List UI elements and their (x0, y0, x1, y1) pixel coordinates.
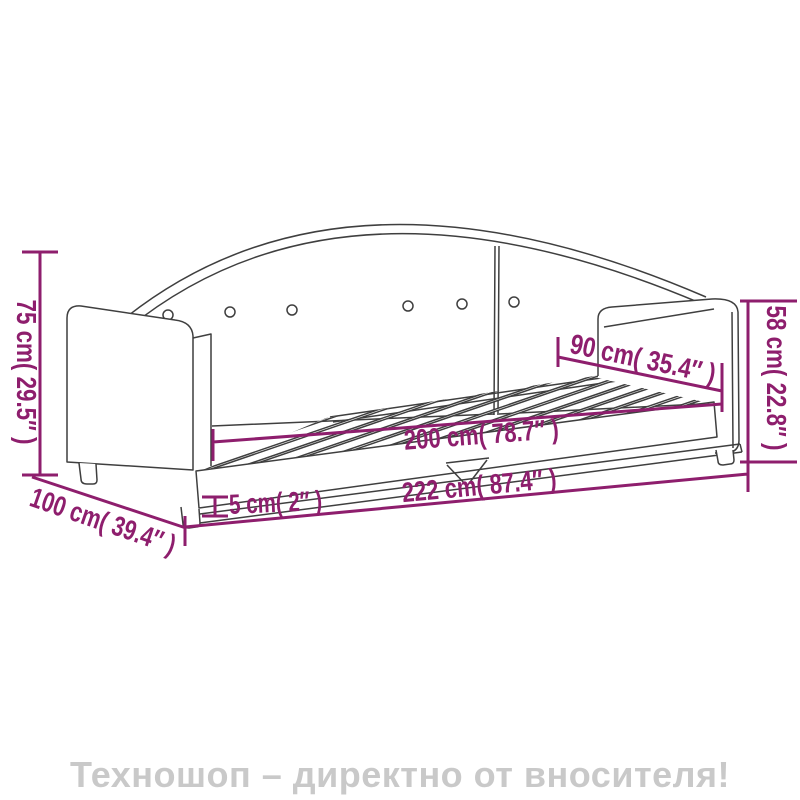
dimension-height: 75 cm( 29.5″ ) (11, 252, 58, 475)
armrest-leg (79, 463, 97, 484)
dimension-leg-height-label: 5 cm( 2″ ) (228, 485, 322, 520)
footer-banner: Техношоп – директно от вносителя! (0, 750, 800, 800)
left-armrest (67, 306, 211, 484)
dimension-height-label: 75 cm( 29.5″ ) (11, 300, 42, 445)
footer-banner-text: Техношоп – директно от вносителя! (70, 754, 730, 796)
dimension-diagram: 75 cm( 29.5″ ) 100 cm( 39.4″ ) 222 cm( 8… (0, 0, 800, 800)
product-dimension-page: 75 cm( 29.5″ ) 100 cm( 39.4″ ) 222 cm( 8… (0, 0, 800, 800)
dimension-arm-height: 58 cm( 22.8″ ) (740, 301, 797, 462)
front-right-leg (716, 450, 734, 465)
dimension-arm-height-label: 58 cm( 22.8″ ) (761, 306, 792, 451)
tufting-buttons (163, 297, 519, 320)
back-panel-divider (494, 246, 499, 415)
dimension-depth: 100 cm( 39.4″ ) (26, 477, 186, 560)
dimension-depth-label: 100 cm( 39.4″ ) (26, 482, 180, 561)
